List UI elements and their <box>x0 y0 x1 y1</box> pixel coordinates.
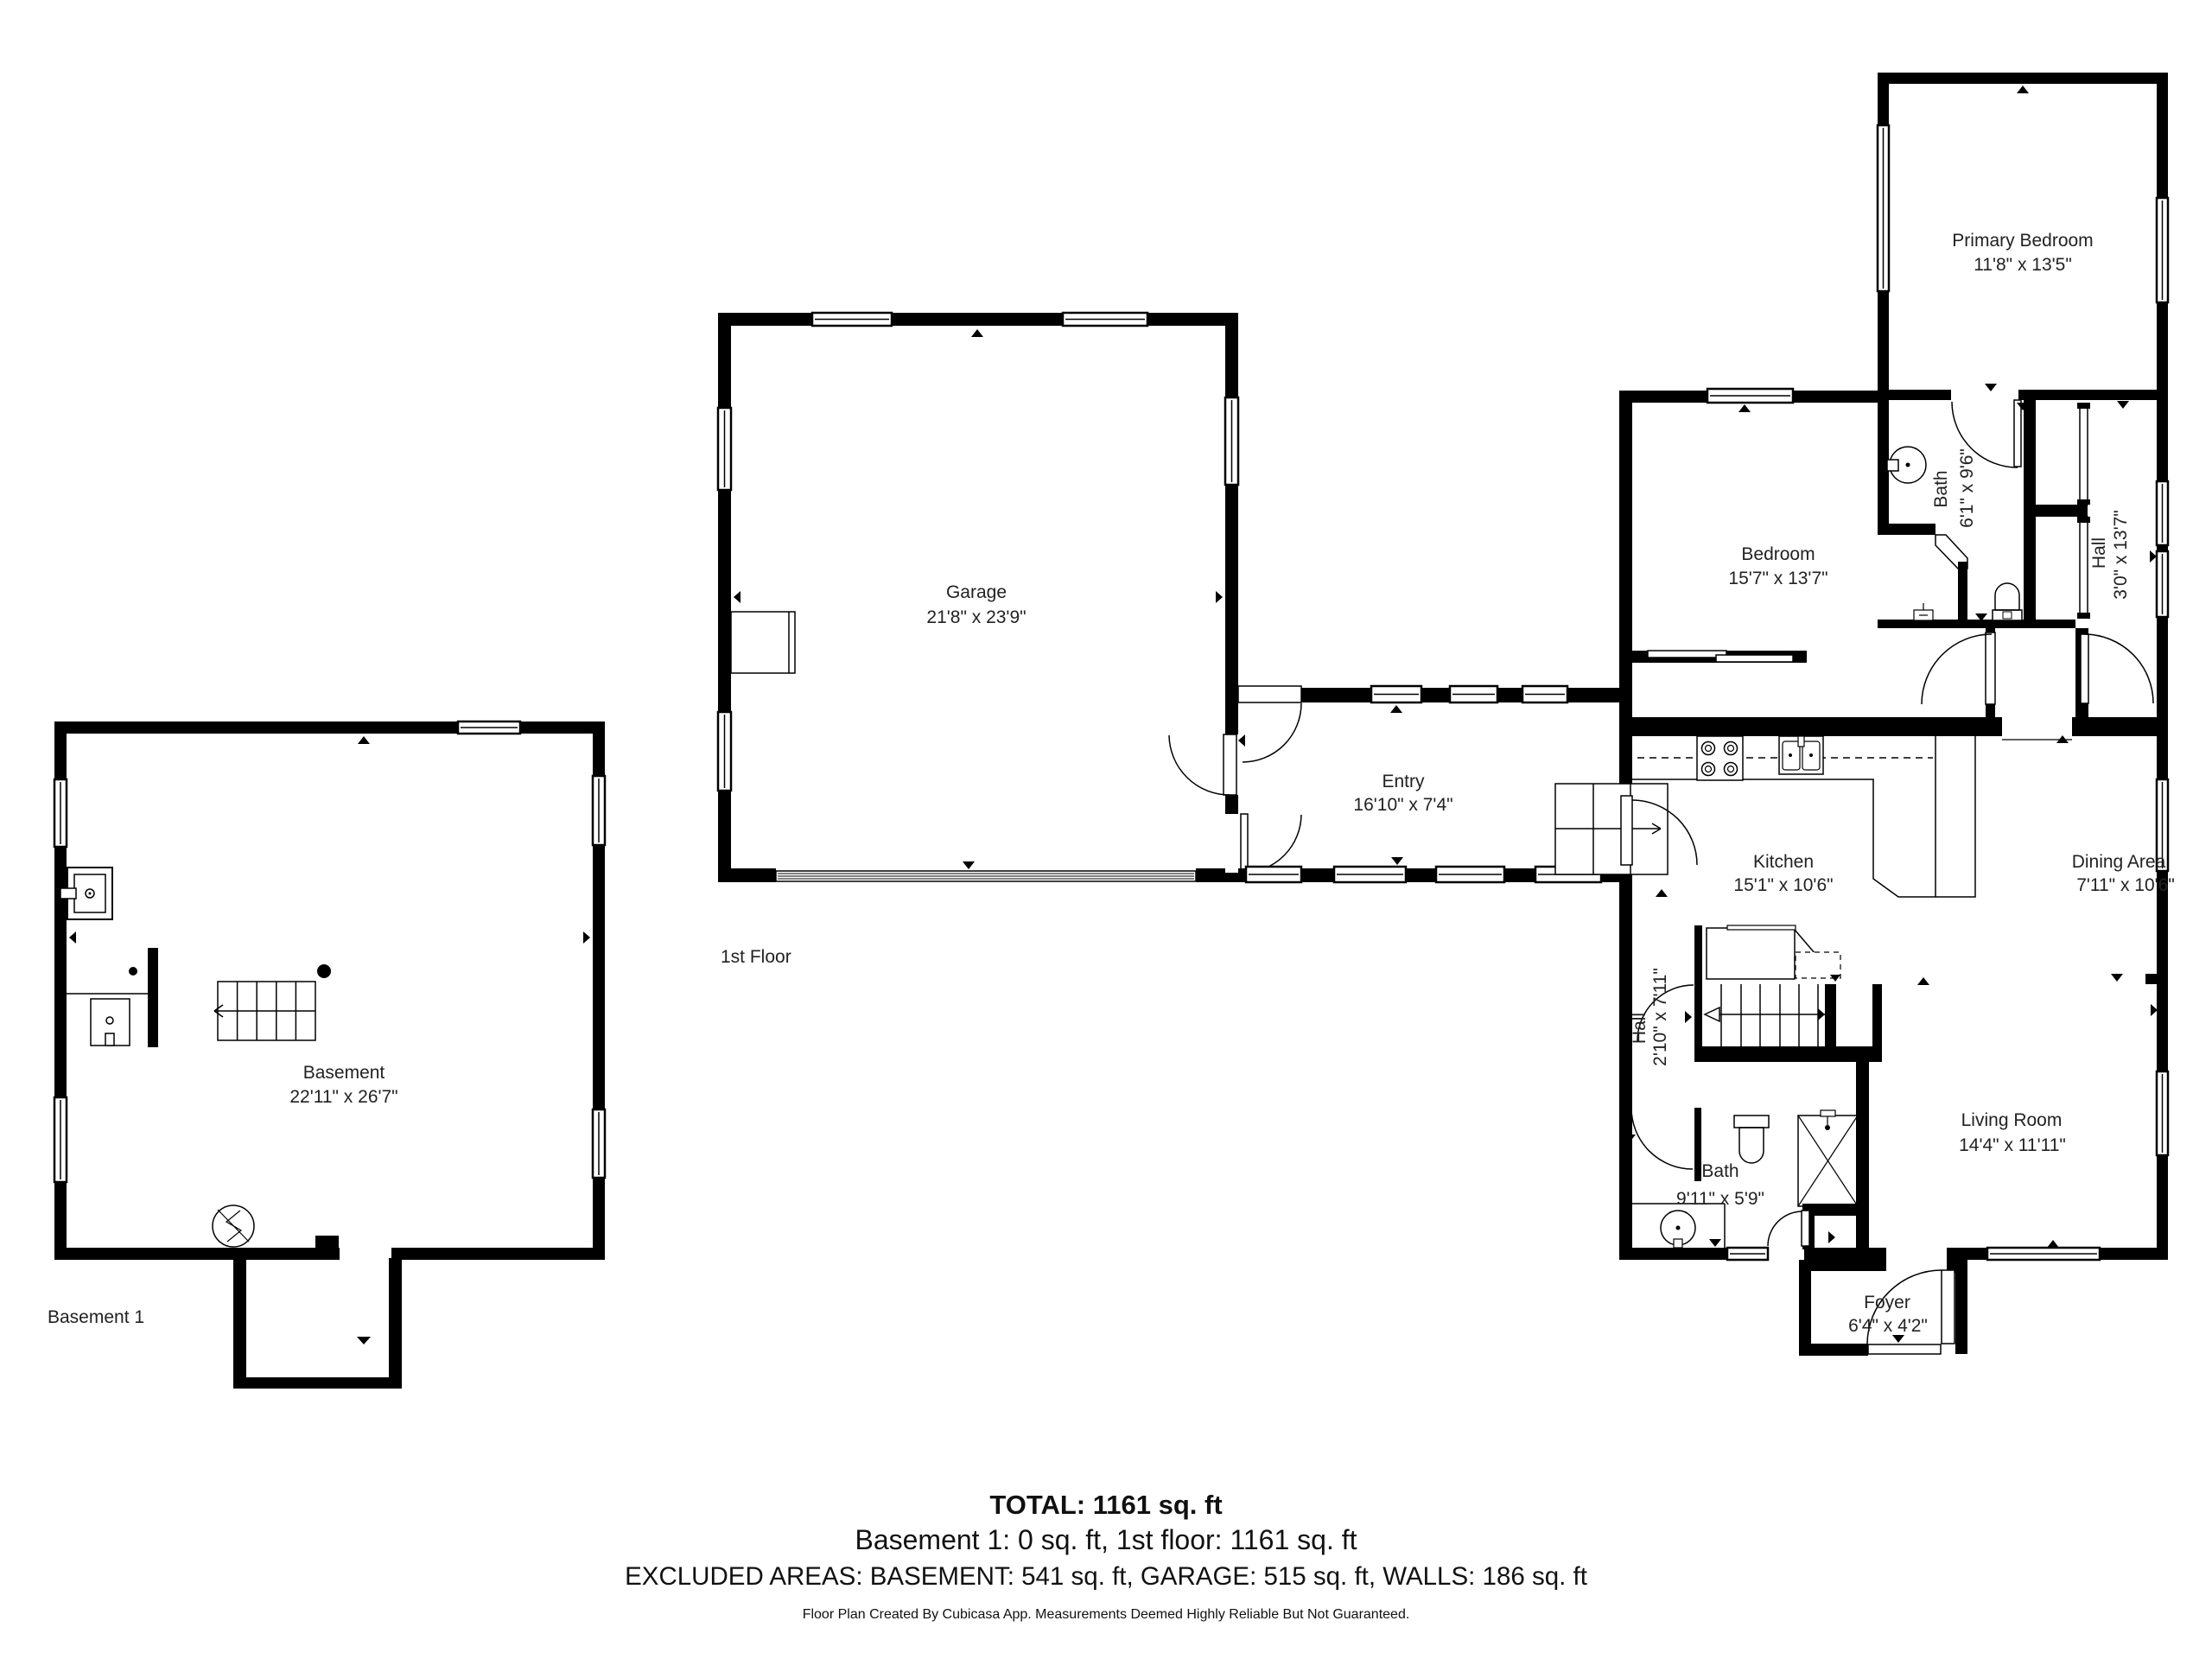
svg-text:Bath: Bath <box>1701 1161 1738 1181</box>
svg-text:Kitchen: Kitchen <box>1753 852 1814 872</box>
svg-text:Foyer: Foyer <box>1864 1293 1910 1313</box>
svg-text:Bedroom: Bedroom <box>1741 544 1815 564</box>
svg-text:EXCLUDED AREAS: BASEMENT: 541: EXCLUDED AREAS: BASEMENT: 541 sq. ft, GA… <box>625 1562 1587 1591</box>
svg-text:Hall: Hall <box>1630 1013 1649 1044</box>
svg-text:21'8" x 23'9": 21'8" x 23'9" <box>926 607 1026 627</box>
svg-text:Garage: Garage <box>946 582 1007 602</box>
svg-text:Bath: Bath <box>1931 470 1951 507</box>
svg-text:11'8" x 13'5": 11'8" x 13'5" <box>1974 255 2072 275</box>
svg-text:Hall: Hall <box>2089 537 2109 569</box>
svg-text:15'7" x 13'7": 15'7" x 13'7" <box>1728 569 1827 588</box>
svg-text:Floor Plan Created By Cubicasa: Floor Plan Created By Cubicasa App. Meas… <box>803 1607 1410 1622</box>
svg-text:16'10" x 7'4": 16'10" x 7'4" <box>1353 795 1452 815</box>
svg-text:Entry: Entry <box>1382 772 1425 791</box>
svg-text:3'0" x 13'7": 3'0" x 13'7" <box>2111 510 2131 600</box>
svg-text:1st Floor: 1st Floor <box>721 947 791 967</box>
svg-text:Dining Area: Dining Area <box>2072 852 2166 872</box>
svg-text:Basement: Basement <box>303 1063 385 1083</box>
svg-text:2'10" x 7'11": 2'10" x 7'11" <box>1650 968 1670 1066</box>
svg-text:Basement 1: Basement 1 <box>48 1307 144 1327</box>
svg-text:TOTAL: 1161 sq. ft: TOTAL: 1161 sq. ft <box>989 1490 1222 1520</box>
svg-text:14'4" x 11'11": 14'4" x 11'11" <box>1959 1135 2066 1155</box>
svg-text:7'11" x 10'6": 7'11" x 10'6" <box>2076 875 2175 895</box>
svg-text:15'1" x 10'6": 15'1" x 10'6" <box>1733 875 1833 895</box>
svg-text:9'11" x 5'9": 9'11" x 5'9" <box>1676 1189 1764 1209</box>
svg-text:Basement 1: 0 sq. ft, 1st floo: Basement 1: 0 sq. ft, 1st floor: 1161 sq… <box>855 1524 1357 1555</box>
svg-text:6'4" x 4'2": 6'4" x 4'2" <box>1848 1316 1928 1336</box>
svg-text:Primary Bedroom: Primary Bedroom <box>1952 231 2093 251</box>
svg-text:Living Room: Living Room <box>1961 1110 2063 1130</box>
svg-text:6'1" x 9'6": 6'1" x 9'6" <box>1957 448 1977 528</box>
svg-text:22'11" x 26'7": 22'11" x 26'7" <box>289 1087 397 1107</box>
